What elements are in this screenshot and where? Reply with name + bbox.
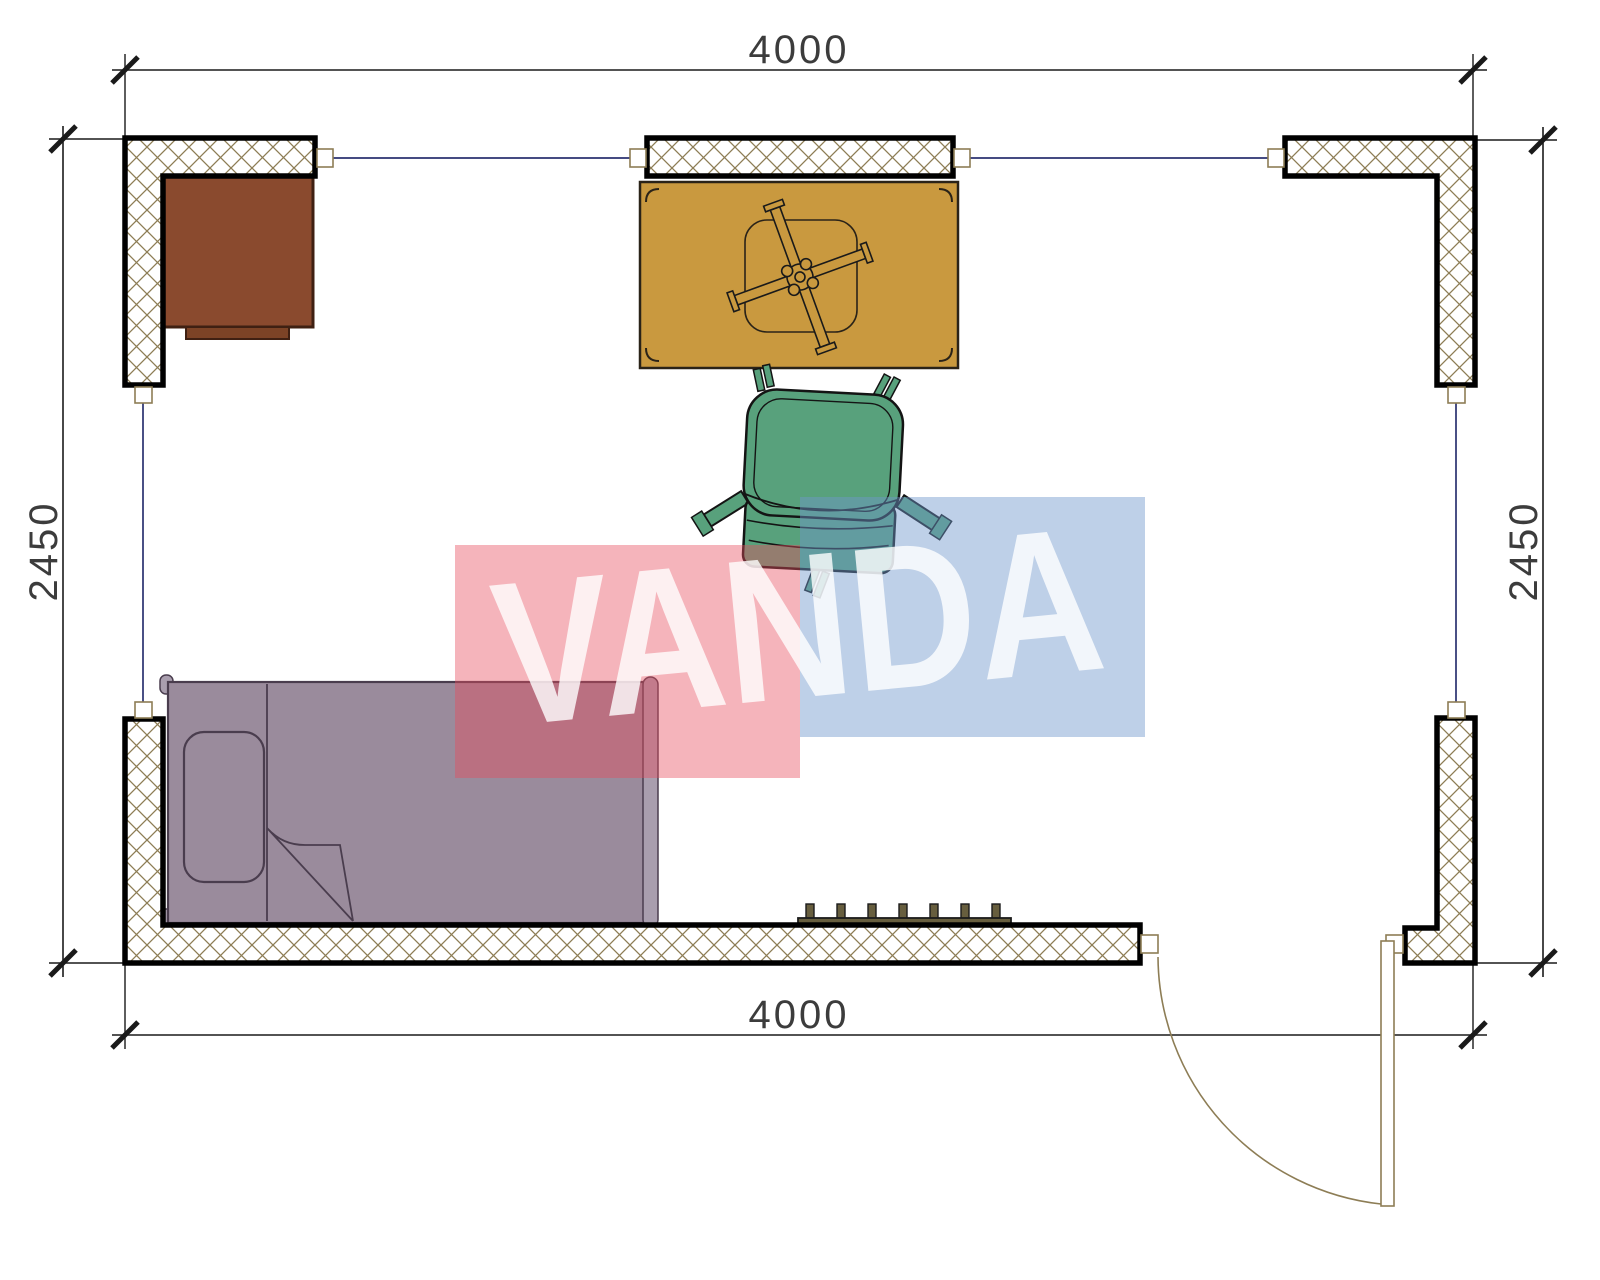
wall-bottom-right <box>1405 718 1475 963</box>
door-swing-icon <box>1141 935 1403 1206</box>
window-frame <box>135 702 152 718</box>
floor-plan: 4000 4000 2450 2450 <box>0 0 1600 1280</box>
table-with-fan-base-icon <box>640 177 958 376</box>
desk-cabinet-icon <box>160 173 313 339</box>
door-leaf <box>1381 941 1394 1206</box>
dimension-label-left: 2450 <box>22 501 66 602</box>
floor-plan-svg: 4000 4000 2450 2450 <box>0 0 1600 1280</box>
window-frame <box>1448 387 1465 403</box>
window-frame <box>1448 702 1465 718</box>
window-frame <box>1268 149 1284 167</box>
window-frame <box>317 149 333 167</box>
dimension-top: 4000 <box>112 28 1487 136</box>
dimension-label-bottom: 4000 <box>749 993 850 1037</box>
bed-pillow <box>184 732 264 882</box>
window-frame <box>954 149 970 167</box>
dimension-label-right: 2450 <box>1502 501 1546 602</box>
door-swing-arc <box>1158 957 1381 1204</box>
window-frame <box>135 387 152 403</box>
dimension-left: 2450 <box>22 126 123 977</box>
desk-body <box>160 173 313 327</box>
dimension-bottom: 4000 <box>112 965 1487 1049</box>
window-frame <box>630 149 646 167</box>
door-jamb-left <box>1141 935 1158 953</box>
dimension-right: 2450 <box>1477 127 1557 977</box>
watermark: VANDA <box>455 484 1145 778</box>
wall-top-center <box>647 138 953 176</box>
wall-top-right <box>1285 138 1475 385</box>
desk-drawer <box>186 327 289 339</box>
dimension-label-top: 4000 <box>749 28 850 72</box>
